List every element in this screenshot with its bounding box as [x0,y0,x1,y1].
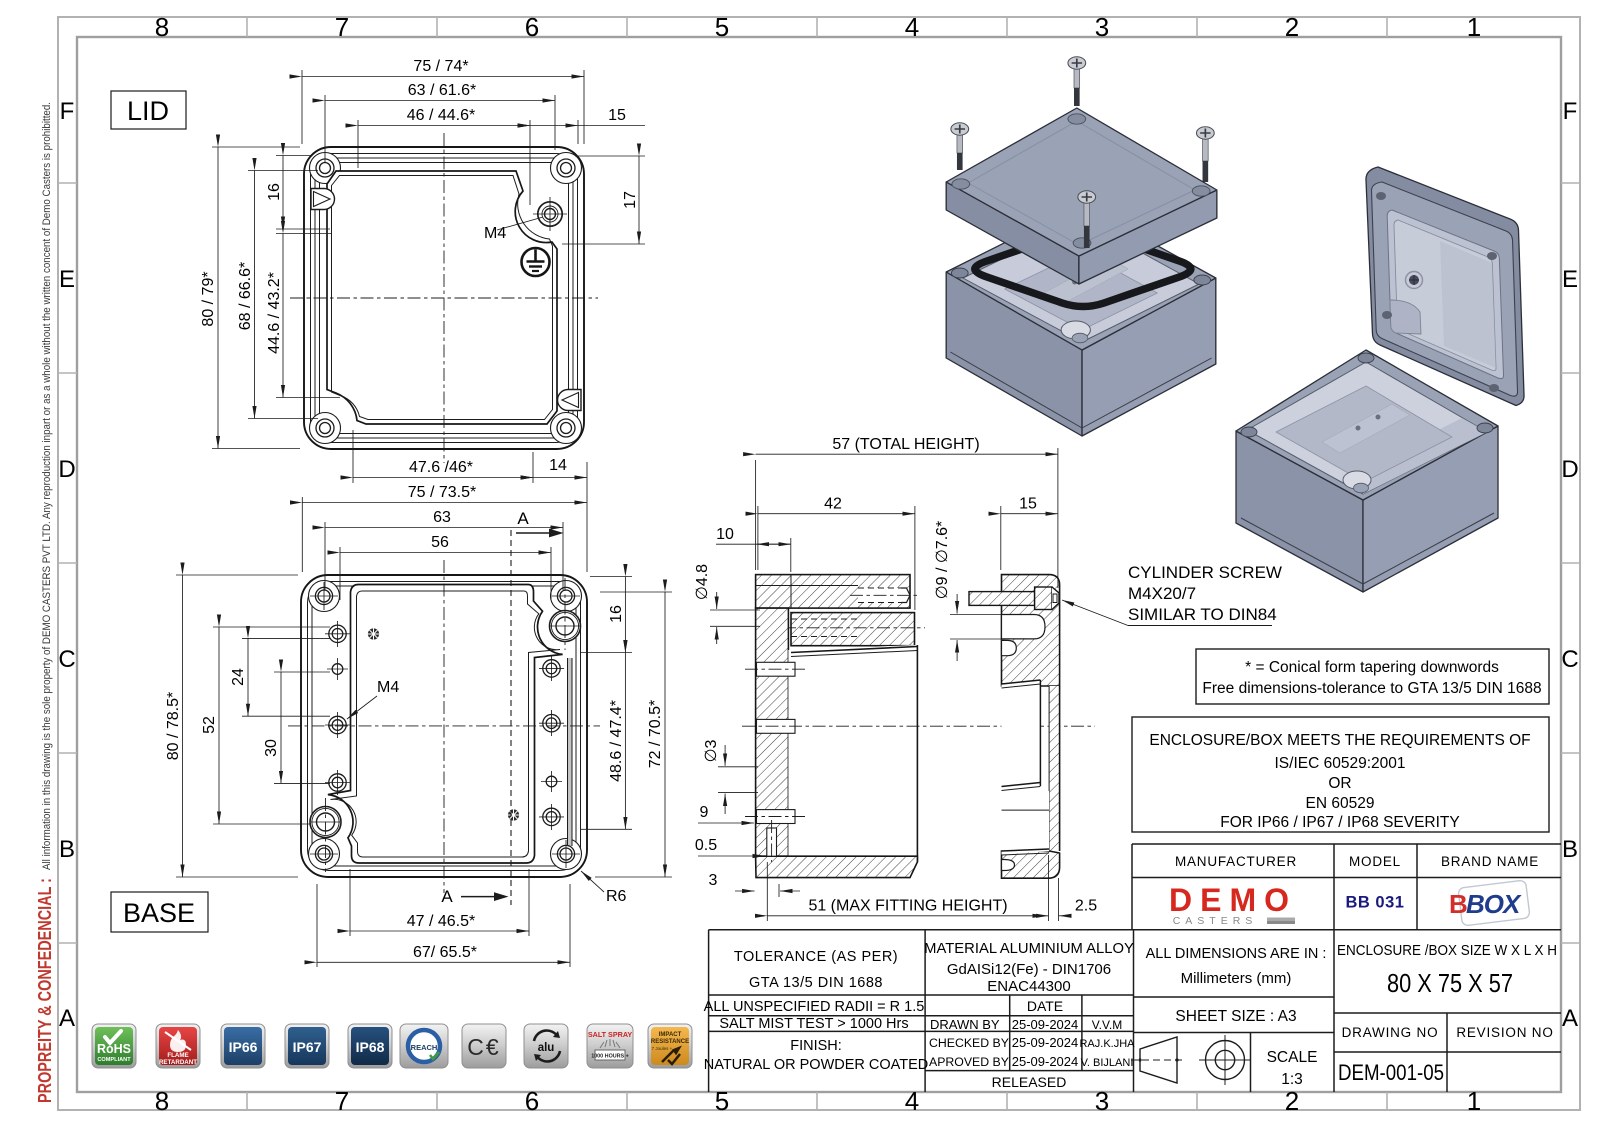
svg-text:alu: alu [538,1042,555,1054]
svg-text:B: B [1562,836,1578,863]
svg-text:BRAND NAME: BRAND NAME [1441,854,1539,869]
svg-text:47 / 46.5*: 47 / 46.5* [407,913,476,930]
svg-text:BASE: BASE [123,898,195,928]
svg-text:DRAWING NO: DRAWING NO [1342,1025,1439,1040]
svg-text:∅9 / ∅7.6*: ∅9 / ∅7.6* [934,521,951,600]
svg-text:M4: M4 [484,225,506,242]
svg-text:48.6 / 47.4*: 48.6 / 47.4* [608,700,625,782]
svg-text:3: 3 [1095,1086,1109,1116]
svg-text:GTA 13/5 DIN 1688: GTA 13/5 DIN 1688 [749,975,883,991]
svg-text:CYLINDER SCREW: CYLINDER SCREW [1128,563,1282,582]
svg-text:A: A [1562,1005,1578,1032]
svg-text:REVISION NO: REVISION NO [1456,1025,1553,1040]
svg-text:RESISTANCE: RESISTANCE [651,1039,689,1045]
svg-text:M4: M4 [377,679,399,696]
svg-text:CASTERS: CASTERS [1173,915,1258,927]
svg-text:A: A [517,509,529,528]
svg-text:LID: LID [127,96,169,126]
svg-text:75 / 73.5*: 75 / 73.5* [408,484,477,501]
svg-text:47.6 /46*: 47.6 /46* [409,459,473,476]
svg-text:EN 60529: EN 60529 [1306,795,1375,812]
svg-text:63: 63 [433,509,451,526]
svg-text:80 X 75 X 57: 80 X 75 X 57 [1387,968,1513,998]
svg-text:E: E [59,266,75,293]
svg-text:FINISH:: FINISH: [790,1038,842,1054]
svg-text:Free dimensions-tolerance to G: Free dimensions-tolerance to GTA 13/5 DI… [1202,680,1541,697]
svg-text:9: 9 [700,804,709,821]
svg-text:FOR IP66 / IP67 / IP68 SEVERIT: FOR IP66 / IP67 / IP68 SEVERITY [1220,814,1460,831]
svg-text:46 / 44.6*: 46 / 44.6* [407,107,476,124]
svg-text:30: 30 [263,739,280,757]
svg-text:16: 16 [608,605,625,623]
svg-text:∅3: ∅3 [703,739,720,762]
svg-text:ENCLOSURE/BOX MEETS THE REQUIR: ENCLOSURE/BOX MEETS THE REQUIREMENTS OF [1149,732,1530,749]
svg-text:ENCLOSURE /BOX SIZE W X L X H: ENCLOSURE /BOX SIZE W X L X H [1337,943,1557,959]
svg-text:∅4.8: ∅4.8 [694,564,711,600]
svg-text:APROVED BY: APROVED BY [929,1055,1009,1069]
svg-text:2: 2 [1285,1086,1299,1116]
svg-text:C: C [1561,646,1578,673]
svg-text:CHECKED BY: CHECKED BY [929,1036,1009,1050]
svg-text:DEMO: DEMO [1169,882,1297,918]
svg-text:16: 16 [266,183,283,201]
svg-text:1:3: 1:3 [1281,1071,1303,1088]
svg-text:SIMILAR TO DIN84: SIMILAR TO DIN84 [1128,605,1277,624]
svg-text:8: 8 [155,12,169,42]
svg-text:SCALE: SCALE [1267,1049,1318,1066]
svg-text:RETARDANT: RETARDANT [159,1059,197,1066]
svg-text:25-09-2024: 25-09-2024 [1012,1035,1079,1050]
svg-text:ENAC44300: ENAC44300 [987,978,1070,995]
svg-text:57 (TOTAL HEIGHT): 57 (TOTAL HEIGHT) [832,436,979,453]
svg-text:REACH: REACH [411,1043,438,1052]
svg-text:MODEL: MODEL [1349,854,1401,869]
svg-text:IS/IEC 60529:2001: IS/IEC 60529:2001 [1275,755,1406,772]
svg-text:IP66: IP66 [229,1039,258,1055]
svg-text:5: 5 [715,1086,729,1116]
svg-text:E: E [1562,266,1578,293]
svg-text:SALT SPRAY: SALT SPRAY [588,1030,633,1039]
svg-text:SALT MIST TEST > 1000 Hrs: SALT MIST TEST > 1000 Hrs [719,1016,908,1032]
svg-text:1: 1 [1467,12,1481,42]
svg-text:8: 8 [155,1086,169,1116]
svg-text:DRAWN BY: DRAWN BY [930,1017,1000,1032]
svg-text:IP68: IP68 [356,1039,385,1055]
svg-text:B: B [59,836,75,863]
svg-text:RAJ.K.JHA: RAJ.K.JHA [1079,1038,1135,1050]
svg-text:RELEASED: RELEASED [992,1074,1067,1090]
svg-text:3: 3 [1095,12,1109,42]
svg-text:15: 15 [1019,496,1037,513]
svg-text:SHEET SIZE : A3: SHEET SIZE : A3 [1175,1008,1296,1025]
svg-text:44.6 / 43.2*: 44.6 / 43.2* [266,272,283,354]
svg-text:BOX: BOX [1466,889,1522,919]
svg-text:IMPACT: IMPACT [659,1032,682,1038]
svg-text:25-09-2024: 25-09-2024 [1012,1017,1079,1032]
svg-text:24: 24 [230,668,247,686]
svg-text:52: 52 [201,716,218,734]
svg-text:42: 42 [824,496,842,513]
svg-text:R6: R6 [606,888,627,905]
svg-text:7: 7 [335,1086,349,1116]
svg-text:V.V.M: V.V.M [1092,1018,1122,1032]
svg-text:* = Conical form tapering down: * = Conical form tapering downwords [1245,659,1499,676]
svg-text:BB 031: BB 031 [1346,894,1405,912]
svg-text:1000 HOURS +: 1000 HOURS + [591,1054,629,1060]
svg-text:GdAISi12(Fe) - DIN1706: GdAISi12(Fe) - DIN1706 [947,961,1111,978]
svg-text:56: 56 [431,534,449,551]
svg-text:6: 6 [525,12,539,42]
svg-text:V. BIJLANI: V. BIJLANI [1081,1057,1134,1069]
svg-text:PROPREITY & CONFEDENCIAL :: PROPREITY & CONFEDENCIAL : [35,878,55,1103]
svg-text:10: 10 [716,526,734,543]
svg-text:Millimeters (mm): Millimeters (mm) [1181,970,1292,987]
svg-text:1: 1 [1467,1086,1481,1116]
svg-text:ALL DIMENSIONS ARE IN :: ALL DIMENSIONS ARE IN : [1146,946,1327,962]
svg-text:F: F [1563,98,1578,125]
svg-text:7: 7 [335,12,349,42]
svg-text:RoHS: RoHS [97,1042,131,1056]
svg-text:25-09-2024: 25-09-2024 [1012,1054,1079,1069]
svg-text:5: 5 [715,12,729,42]
svg-text:D: D [1561,456,1578,483]
svg-text:C: C [58,646,75,673]
svg-text:68 / 66.6*: 68 / 66.6* [237,262,254,331]
svg-text:A: A [59,1005,75,1032]
svg-text:80 / 79*: 80 / 79* [200,271,217,326]
svg-text:A: A [441,887,453,906]
svg-text:75 / 74*: 75 / 74* [413,58,468,75]
svg-text:DEM-001-05: DEM-001-05 [1338,1060,1444,1085]
svg-text:COMPLIANT: COMPLIANT [97,1057,131,1063]
svg-text:OR: OR [1328,775,1351,792]
svg-text:17: 17 [622,191,639,209]
svg-text:ALL UNSPECIFIED RADII = R 1.5: ALL UNSPECIFIED RADII = R 1.5 [704,999,925,1015]
svg-text:14: 14 [549,457,567,474]
svg-text:4: 4 [905,1086,919,1116]
svg-text:C€: C€ [467,1034,500,1060]
svg-text:D: D [58,456,75,483]
svg-text:M4X20/7: M4X20/7 [1128,584,1196,603]
svg-text:72 / 70.5*: 72 / 70.5* [647,700,664,769]
svg-text:NATURAL OR POWDER COATED: NATURAL OR POWDER COATED [704,1057,929,1073]
svg-text:4: 4 [905,12,919,42]
svg-text:67/ 65.5*: 67/ 65.5* [413,944,477,961]
svg-text:15: 15 [608,107,626,124]
svg-text:F: F [60,98,75,125]
svg-text:B: B [1449,889,1468,919]
svg-text:FLAME: FLAME [167,1052,188,1059]
svg-text:63 / 61.6*: 63 / 61.6* [408,82,477,99]
svg-text:80 / 78.5*: 80 / 78.5* [165,692,182,761]
svg-text:6: 6 [525,1086,539,1116]
svg-text:IP67: IP67 [293,1039,322,1055]
svg-text:2.5: 2.5 [1075,898,1097,915]
svg-text:7 Joules +: 7 Joules + [652,1046,673,1051]
svg-text:51 (MAX FITTING HEIGHT): 51 (MAX FITTING HEIGHT) [808,898,1007,915]
svg-text:3: 3 [709,872,718,889]
svg-text:MANUFACTURER: MANUFACTURER [1175,854,1297,869]
svg-text:TOLERANCE (AS PER): TOLERANCE (AS PER) [734,949,898,965]
svg-text:MATERIAL ALUMINIUM ALLOY: MATERIAL ALUMINIUM ALLOY [924,941,1134,957]
svg-text:2: 2 [1285,12,1299,42]
svg-text:0.5: 0.5 [695,837,717,854]
svg-text:DATE: DATE [1027,998,1063,1014]
svg-text:All information in this drawin: All information in this drawing is the s… [41,102,53,870]
